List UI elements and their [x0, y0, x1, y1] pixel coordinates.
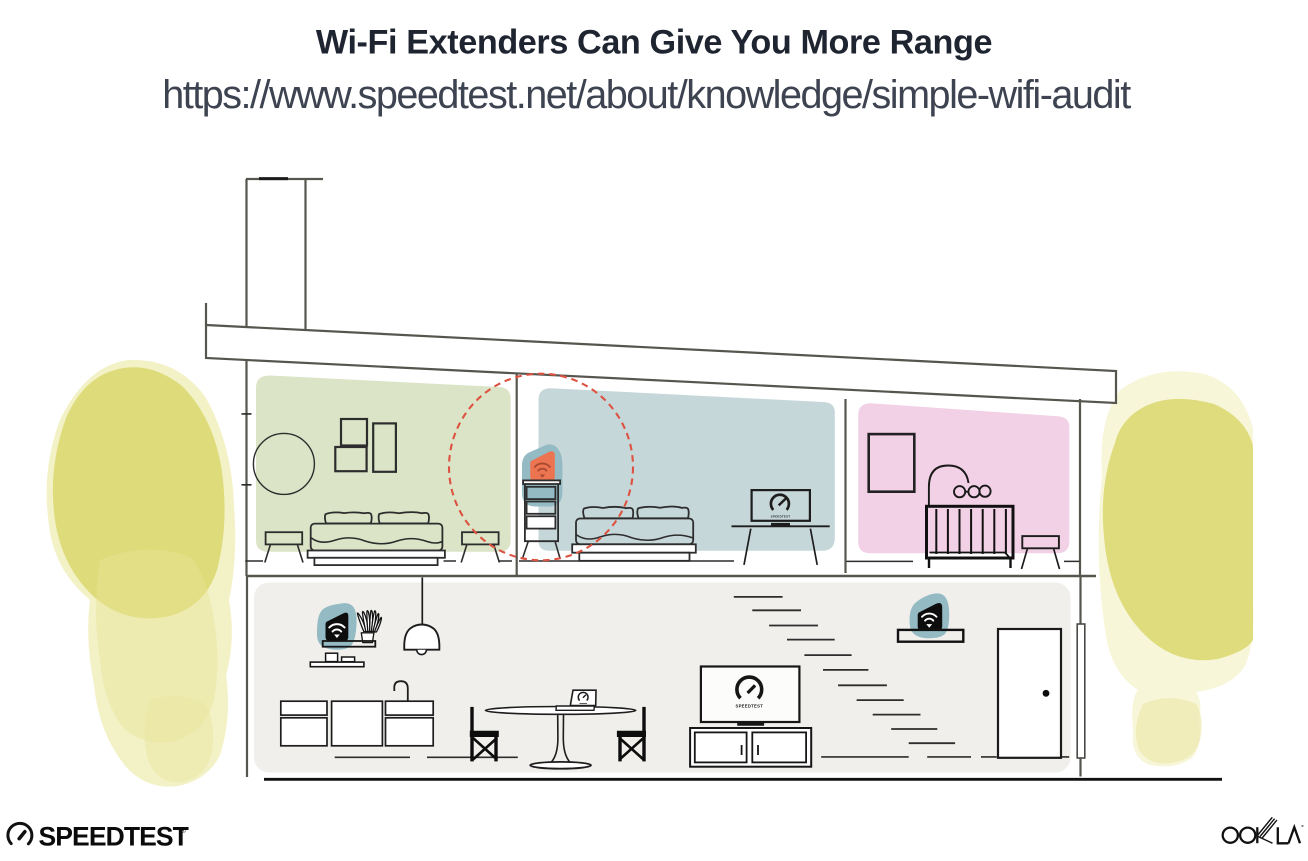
svg-text:SPEEDTEST: SPEEDTEST — [39, 822, 189, 852]
svg-text:®: ® — [180, 826, 186, 835]
svg-text:SPEEDTEST: SPEEDTEST — [771, 515, 791, 519]
svg-text:https://www.speedtest.net/abou: https://www.speedtest.net/about/knowledg… — [162, 73, 1131, 117]
svg-text:SPEEDTEST: SPEEDTEST — [735, 704, 763, 709]
svg-text:Wi-Fi Extenders Can Give You M: Wi-Fi Extenders Can Give You More Range — [316, 24, 992, 62]
